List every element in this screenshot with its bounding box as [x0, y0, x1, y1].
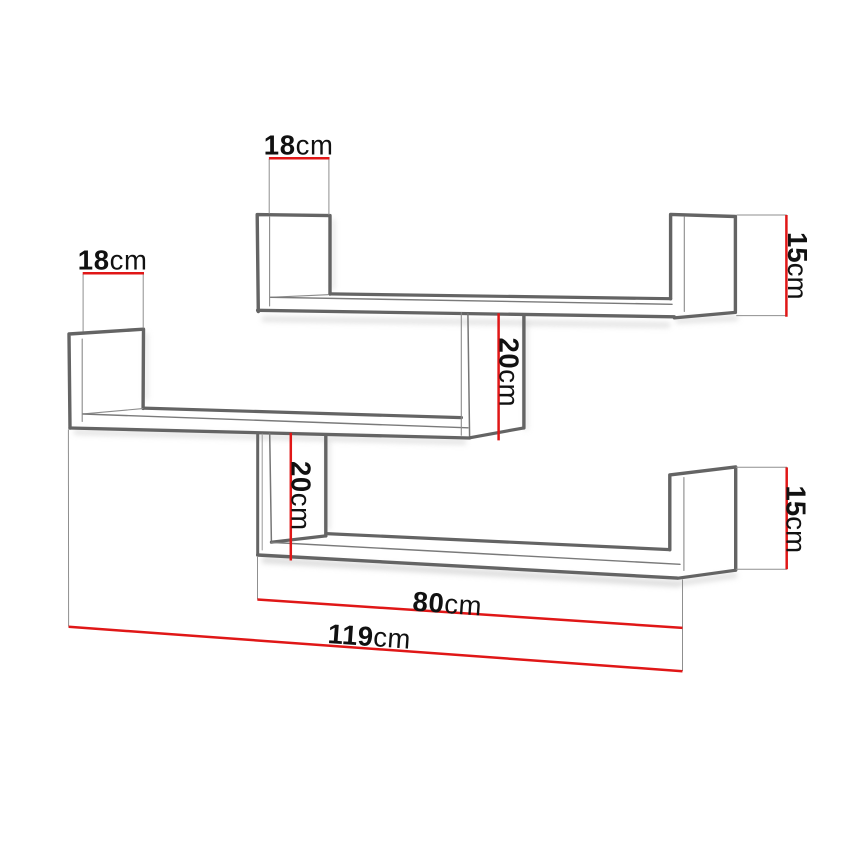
svg-text:20cm: 20cm — [286, 461, 317, 531]
svg-text:18cm: 18cm — [264, 130, 334, 161]
svg-text:20cm: 20cm — [494, 338, 525, 408]
svg-text:18cm: 18cm — [78, 245, 148, 276]
svg-text:80cm: 80cm — [412, 586, 484, 622]
svg-text:15cm: 15cm — [781, 486, 812, 554]
svg-text:15cm: 15cm — [782, 232, 813, 300]
svg-text:119cm: 119cm — [327, 618, 412, 655]
